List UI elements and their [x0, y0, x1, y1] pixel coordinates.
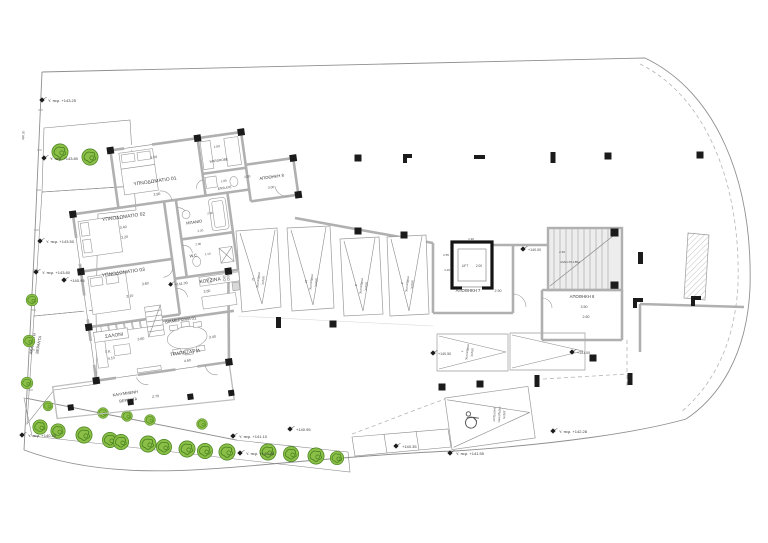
level-marker-icon	[520, 246, 527, 251]
ensuite-label: ENSUITE	[218, 185, 232, 191]
p7-right-level: +141.00	[577, 351, 590, 355]
sink-icon	[182, 210, 191, 219]
lift-dim: 2.00	[476, 264, 482, 268]
site-level-4: +140.95	[70, 278, 85, 283]
bedroom3-dim-b: 3.10	[126, 294, 133, 299]
staircase	[548, 228, 622, 290]
level-marker-icon	[19, 432, 26, 437]
floor-plan-drawing: 350.20 ΑΚΑΛΥΠΤΗ ΒΕΡΑΝΤΑ	[0, 0, 768, 543]
site-level-7: Υ. περ. +140.46	[246, 451, 275, 456]
level-marker-icon	[287, 426, 294, 431]
shower-icon	[205, 176, 217, 188]
disabled-parking-l3: αναπήρων	[492, 407, 497, 422]
site-level-0: Υ. περ. +143.25	[48, 98, 77, 103]
tree-icon	[76, 427, 92, 443]
level-marker-icon	[37, 238, 44, 243]
storage8-dim-b: 3.00	[268, 185, 275, 190]
dining-dim-a: 4.60	[184, 358, 191, 363]
parking-spot-9: χώρος στάθμευσης 9	[340, 237, 383, 316]
wc-dim-a: 1.10	[205, 251, 212, 256]
wardrobe-dim: 1.00	[214, 144, 221, 149]
disabled-parking: χώρος στάθμευσης αναπήρων	[445, 386, 535, 449]
lift-label: LIFT	[462, 264, 469, 268]
site-level-6: Υ. περ. +141.10	[239, 434, 268, 439]
lift-shaft	[452, 242, 492, 288]
storage6-dim-a: 3.50	[581, 305, 588, 309]
fridge-icon	[232, 282, 240, 291]
level-marker-icon	[41, 155, 48, 160]
site-level-3: Υ. περ. +143.80	[42, 270, 71, 275]
storage6-label: ΑΠΟΘΗΚΗ 6	[570, 294, 595, 299]
living-gk-dim: 4.10	[108, 356, 115, 361]
tree-icon	[113, 434, 128, 449]
tree-icon	[21, 377, 33, 389]
parking-spots: χώρος στάθμευσης 11 χώρος στάθμευσης 10 …	[236, 226, 585, 450]
bathroom-label: ΜΠΑΝΙΟ	[186, 218, 203, 225]
tree-icon	[145, 415, 156, 426]
tree-icon	[43, 401, 53, 411]
boundary-dimension: 350.20	[21, 130, 25, 140]
level-marker-icon	[550, 428, 557, 433]
planter-hatch	[684, 233, 709, 300]
tree-icon	[330, 451, 344, 465]
site-level-9: +140.35	[402, 444, 417, 449]
covered-veranda-dim: 2.70	[152, 394, 159, 399]
wc-dim-b: 2.00	[195, 242, 202, 247]
stairs-width: 2.30	[559, 250, 565, 254]
storage8-label: ΑΠΟΘΗΚΗ 8	[259, 172, 285, 180]
site-level-1: Υ. περ. +143.80	[50, 156, 79, 161]
parking-spot-10: χώρος στάθμευσης 10	[287, 226, 334, 311]
tree-icon	[23, 335, 35, 347]
ensuite-dim: 1.80	[221, 179, 228, 184]
storage7-dim-b: 2.55	[443, 253, 449, 257]
storage6-dim-b: 2.60	[583, 315, 590, 319]
level-marker-icon	[393, 443, 400, 448]
stairs-note: 24ΑΝ.Χ0.185μ	[560, 260, 580, 264]
kitchen-dim: 3.50	[203, 289, 210, 294]
level-marker-icon	[230, 433, 237, 438]
tree-icon	[122, 411, 133, 422]
site-level-11: Υ. περ. +142.28	[559, 429, 588, 434]
tree-icon	[82, 149, 98, 165]
tree-icon	[26, 294, 38, 306]
p7-left-level: +140.50	[438, 352, 451, 356]
tree-icon	[219, 444, 235, 460]
apartment-columns	[33, 121, 329, 418]
disabled-parking-l1: χώρος	[502, 410, 506, 419]
disabled-parking-l2: στάθμευσης	[497, 407, 502, 424]
parking-spot-11: χώρος στάθμευσης 11	[236, 228, 281, 312]
level-marker-icon	[430, 350, 437, 355]
kitchen-level: +141.00	[174, 281, 188, 287]
lift-width: 1.90	[468, 237, 474, 241]
dining-dim-b: 3.40	[209, 335, 216, 340]
site-level-10: Υ. περ. +141.55	[456, 451, 485, 456]
living-gk-label: Γ.Κ.	[105, 349, 111, 354]
floor-plan-page: 350.20 ΑΚΑΛΥΠΤΗ ΒΕΡΑΝΤΑ	[0, 0, 768, 543]
site-level-2: Υ. περ. +143.50	[46, 239, 75, 244]
storage7-dim-a: 4.15	[444, 268, 450, 272]
level-marker-icon	[237, 450, 244, 455]
tree-icon	[156, 439, 171, 454]
tree-icon	[197, 419, 208, 430]
bathroom-dim-a: 2.00	[207, 211, 214, 216]
kitchen-island-icon	[202, 292, 237, 309]
core-block: LIFT 2.00 1.90 2.55 4.15 ΑΠΟΘΗΚΗ 7 2.90 …	[433, 228, 622, 340]
tree-icon	[283, 446, 298, 461]
bedroom1-dim-b: 3.90	[153, 192, 160, 197]
bedroom1-dim-a: 4.00	[150, 155, 157, 160]
parking-spot-8: χώρος στάθμευσης 8	[387, 235, 429, 316]
coffee-table-icon	[114, 344, 131, 356]
bedroom2-dim-b: 3.20	[121, 235, 128, 240]
living-dim: 3.60	[137, 337, 144, 342]
storage7-label: ΑΠΟΘΗΚΗ 7	[456, 288, 481, 293]
bedroom2-dim-a: 3.40	[119, 225, 126, 230]
site-level-5: Υ. περ. +140.20	[28, 433, 57, 438]
internal-stair	[145, 305, 165, 337]
outdoor-areas: ΑΚΑΛΥΠΤΗ ΒΕΡΑΝΤΑ	[24, 120, 451, 472]
bathroom-dim-b: 2.20	[197, 228, 204, 233]
lift-lobby-level: +140.00	[528, 248, 541, 252]
site-level-8: +140.95	[296, 427, 311, 432]
tree-icon	[308, 448, 324, 464]
tree-icon	[140, 436, 156, 452]
level-marker-icon	[61, 277, 68, 282]
tree-icon	[197, 443, 212, 458]
bedroom3-dim-a: 3.60	[142, 281, 149, 286]
storage8-dim-a: 2.50	[244, 174, 251, 179]
tree-icon	[179, 441, 195, 457]
storage7-dim: 2.90	[495, 289, 502, 293]
